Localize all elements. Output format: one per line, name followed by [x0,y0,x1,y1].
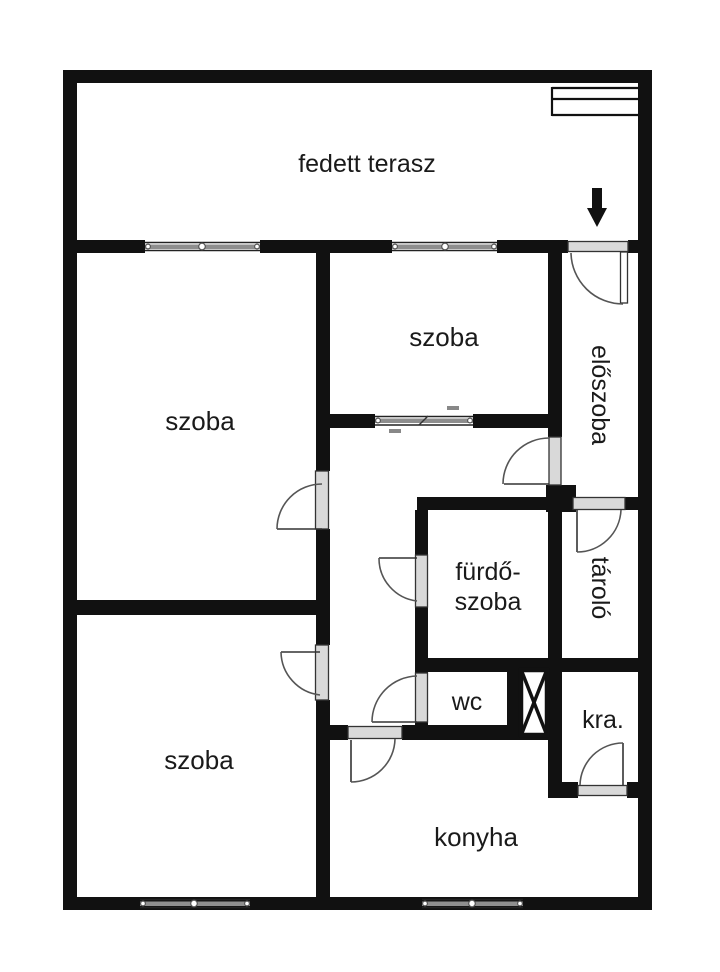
ventilation-shaft-symbol [521,670,547,735]
wall [415,510,428,555]
wall [77,240,145,253]
wall [415,607,428,673]
wall [548,782,578,798]
wall [625,497,652,510]
wall [316,529,330,645]
wall [627,782,652,798]
wall [497,240,568,253]
door-entryhall-to-hall [503,437,561,485]
door-wc [372,673,428,722]
wall [316,725,348,740]
room-label-pantry: kra. [582,706,624,734]
door-entrance [568,242,628,305]
room-label-wc: wc [451,688,483,716]
dimension-mark [447,406,459,410]
room-label-kitchen: konyha [434,822,518,852]
wall [548,253,562,437]
door-pantry [578,743,627,796]
wall [63,70,652,83]
room-label-room-top-middle: szoba [409,322,479,352]
room-label-room-top-left: szoba [165,406,235,436]
door-bathroom [379,555,428,607]
wall [473,414,548,428]
wall [316,414,375,428]
room-label-bathroom-line1: fürdő- [455,558,520,586]
wall [260,240,392,253]
wall [548,485,562,798]
window-terrace-right [392,243,497,251]
dimension-mark [389,429,401,433]
door-storage [573,498,625,553]
entrance-steps [552,87,639,116]
room-label-storage: tároló [586,557,614,620]
window-terrace-left [145,243,260,251]
window-interior [375,406,473,433]
room-label-room-bottom-left: szoba [164,745,234,775]
door-room-bottom-left [281,645,329,700]
wall [316,253,330,471]
floor-plan-drawing: fedett terasz szoba szoba előszoba tárol… [0,0,720,972]
wall [546,485,576,512]
floor-plan-page: fedett terasz szoba szoba előszoba tárol… [0,0,720,972]
wall [63,70,77,910]
interior-walls [77,240,652,897]
wall [77,600,330,615]
door-room-top-left [277,471,329,529]
room-label-entry-hall: előszoba [586,345,614,445]
room-label-bathroom-line2: szoba [455,588,522,616]
door-kitchen [348,727,402,783]
entrance-arrow-icon [587,188,607,227]
wall [417,497,548,510]
room-label-terrace: fedett terasz [298,150,436,178]
wall [628,240,640,253]
